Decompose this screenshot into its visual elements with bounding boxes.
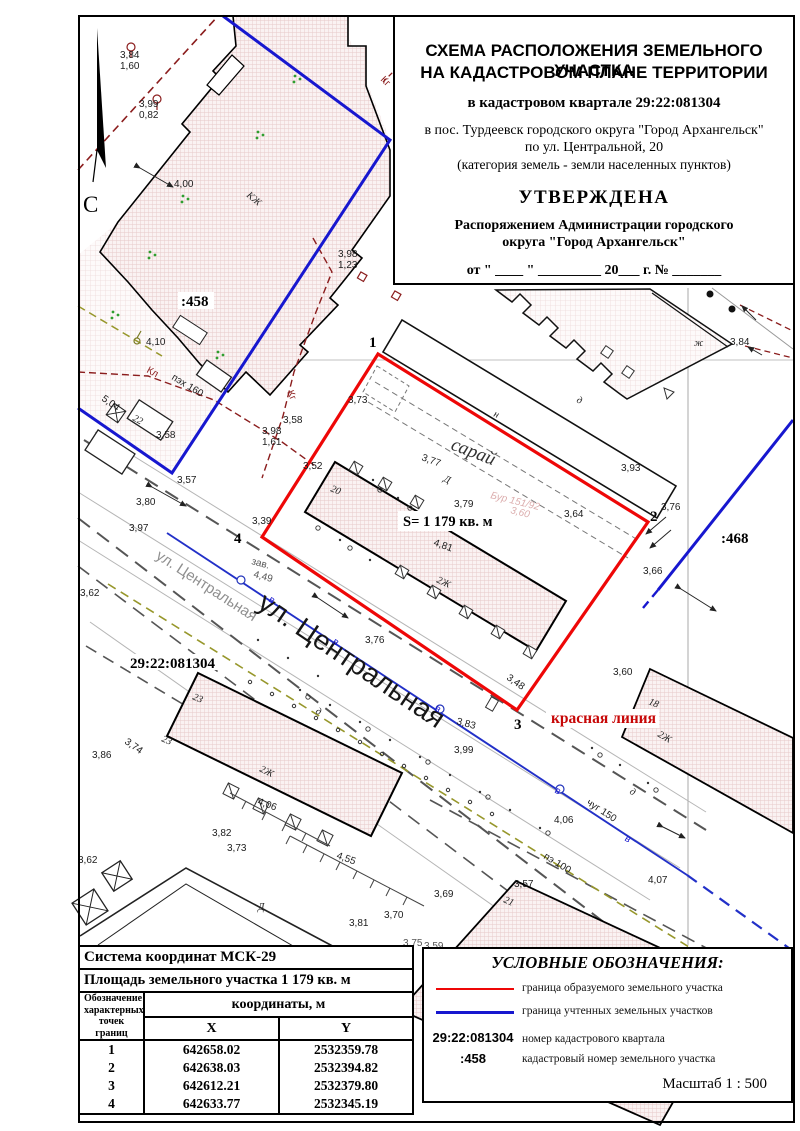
x-column-header: X — [144, 1017, 279, 1040]
table-row: 4 642633.77 2532345.19 — [79, 1095, 413, 1114]
legend: УСЛОВНЫЕ ОБОЗНАЧЕНИЯ: граница образуемог… — [422, 947, 793, 1103]
point-number: 4 — [79, 1095, 144, 1114]
y-value: 2532345.19 — [279, 1095, 413, 1114]
point-number: 3 — [79, 1077, 144, 1095]
land-category-line: (категория земель - земли населенных пун… — [395, 157, 793, 173]
x-value: 642612.21 — [144, 1077, 279, 1095]
legend-title: УСЛОВНЫЕ ОБОЗНАЧЕНИЯ: — [424, 953, 791, 973]
parcel-area-row: Площадь земельного участка 1 179 кв. м — [79, 969, 413, 992]
scheme-title-line2: НА КАДАСТРОВОМ ПЛАНЕ ТЕРРИТОРИИ — [395, 63, 793, 83]
points-header-line: характерных — [84, 1005, 144, 1016]
cadastral-scheme-page: { "title_block": { "line1": "СХЕМА РАСПО… — [0, 0, 800, 1131]
point-number: 2 — [79, 1059, 144, 1077]
legend-item-text: номер кадастрового квартала — [522, 1033, 665, 1045]
cadastral-quarter-line: в кадастровом квартале 29:22:081304 — [395, 95, 793, 112]
red-line-sample — [436, 988, 514, 990]
legend-item-text: граница учтенных земельных участков — [522, 1005, 713, 1017]
approved-heading: УТВЕРЖДЕНА — [395, 187, 793, 209]
table-row: 1 642658.02 2532359.78 — [79, 1040, 413, 1059]
legend-item-text: граница образуемого земельного участка — [522, 982, 723, 994]
coord-system-label: Система координат МСК-29 — [79, 946, 413, 969]
scale-label: Масштаб 1 : 500 — [662, 1076, 767, 1093]
points-column-header: Обозначение характерных точек границ — [79, 992, 144, 1040]
title-block: СХЕМА РАСПОЛОЖЕНИЯ ЗЕМЕЛЬНОГО УЧАСТКА НА… — [393, 15, 795, 285]
y-value: 2532379.80 — [279, 1077, 413, 1095]
point-number: 1 — [79, 1040, 144, 1059]
blue-line-sample — [436, 1011, 514, 1014]
x-value: 642633.77 — [144, 1095, 279, 1114]
address-line1: в пос. Турдеевск городского округа "Горо… — [395, 123, 793, 139]
approved-by-line1: Распоряжением Администрации городского — [395, 218, 793, 234]
table-row: 2 642638.03 2532394.82 — [79, 1059, 413, 1077]
approval-date-line: от " ____ " _________ 20___ г. № _______ — [395, 263, 793, 279]
coords-header: координаты, м — [144, 992, 413, 1017]
address-line2: по ул. Центральной, 20 — [395, 140, 793, 156]
legend-item-text: кадастровый номер земельного участка — [522, 1053, 715, 1065]
legend-parcel-code: :458 — [426, 1051, 520, 1066]
coordinates-table: Система координат МСК-29 Площадь земельн… — [78, 945, 414, 1115]
legend-quarter-code: 29:22:081304 — [426, 1030, 520, 1045]
y-column-header: Y — [279, 1017, 413, 1040]
y-value: 2532394.82 — [279, 1059, 413, 1077]
y-value: 2532359.78 — [279, 1040, 413, 1059]
table-row: 3 642612.21 2532379.80 — [79, 1077, 413, 1095]
points-header-line: Обозначение — [84, 993, 142, 1004]
approved-by-line2: округа "Город Архангельск" — [395, 235, 793, 251]
x-value: 642638.03 — [144, 1059, 279, 1077]
points-header-line: точек границ — [95, 1016, 127, 1039]
x-value: 642658.02 — [144, 1040, 279, 1059]
